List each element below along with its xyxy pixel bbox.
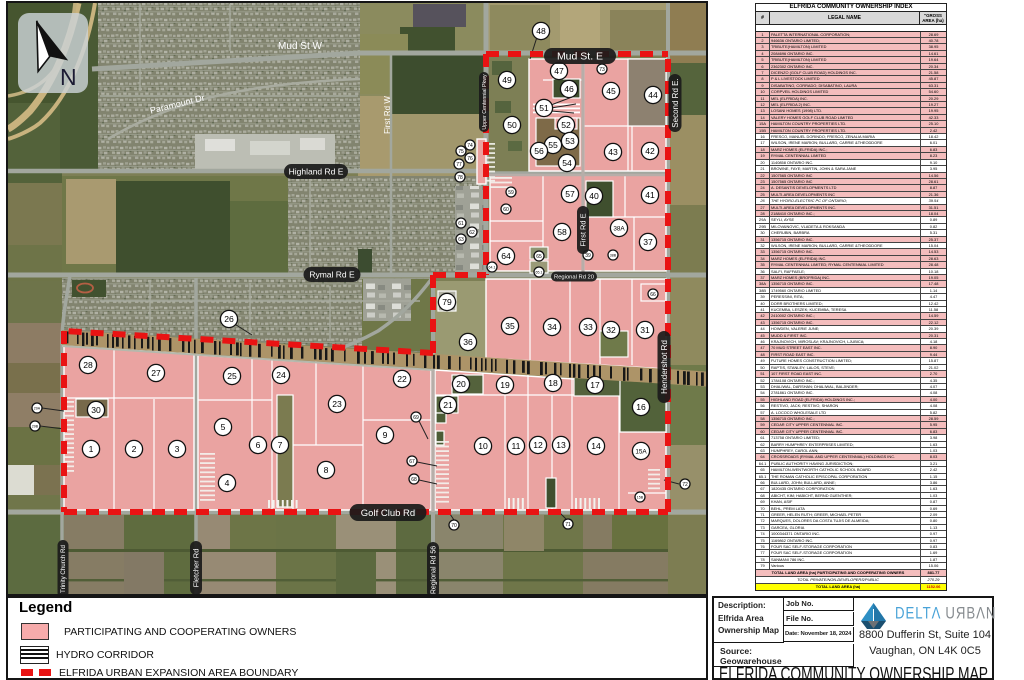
svg-text:52: 52 (561, 120, 571, 130)
svg-text:16: 16 (636, 402, 646, 412)
svg-text:N: N (60, 64, 77, 90)
svg-text:65.1: 65.1 (536, 270, 543, 274)
svg-text:20: 20 (456, 379, 466, 389)
svg-text:Regional Rd 20: Regional Rd 20 (554, 275, 594, 281)
svg-text:26: 26 (224, 314, 234, 324)
svg-text:77: 77 (456, 162, 462, 168)
svg-text:32: 32 (606, 325, 616, 335)
svg-text:First Rd W: First Rd W (383, 96, 392, 134)
svg-text:Rymal Rd E: Rymal Rd E (309, 270, 355, 280)
svg-text:4: 4 (225, 478, 230, 488)
svg-text:72: 72 (682, 482, 688, 488)
svg-text:78: 78 (457, 175, 463, 181)
svg-text:51: 51 (539, 103, 549, 113)
svg-text:53: 53 (565, 136, 575, 146)
svg-text:DELTΛ: DELTΛ (895, 604, 941, 623)
svg-text:62: 62 (469, 230, 475, 236)
svg-text:45: 45 (606, 86, 616, 96)
svg-text:31: 31 (640, 325, 650, 335)
svg-text:Highland Rd E: Highland Rd E (289, 167, 344, 177)
svg-text:5: 5 (221, 422, 226, 432)
svg-text:76: 76 (467, 156, 473, 162)
svg-text:9: 9 (383, 430, 388, 440)
svg-text:69: 69 (413, 415, 419, 421)
svg-text:38A: 38A (613, 225, 625, 232)
svg-text:40: 40 (589, 191, 599, 201)
svg-text:66: 66 (650, 292, 656, 298)
svg-text:71: 71 (565, 522, 571, 528)
svg-text:68: 68 (411, 477, 417, 483)
svg-text:18: 18 (548, 378, 558, 388)
svg-text:55: 55 (548, 140, 558, 150)
svg-text:1: 1 (89, 444, 94, 454)
svg-text:64: 64 (501, 251, 511, 261)
svg-text:Hendershot Rd: Hendershot Rd (660, 340, 669, 394)
svg-text:19: 19 (500, 380, 510, 390)
svg-text:58: 58 (557, 227, 567, 237)
svg-text:33: 33 (583, 322, 593, 332)
svg-text:36: 36 (463, 337, 473, 347)
svg-text:63: 63 (458, 237, 464, 243)
svg-text:6: 6 (256, 440, 261, 450)
svg-text:37: 37 (643, 237, 653, 247)
svg-text:47: 47 (554, 66, 564, 76)
svg-text:21: 21 (443, 400, 453, 410)
svg-text:UЯBΛN: UЯBΛN (945, 604, 996, 623)
svg-text:27: 27 (151, 368, 161, 378)
svg-text:79: 79 (442, 297, 452, 307)
svg-text:35: 35 (505, 321, 515, 331)
svg-text:65: 65 (536, 254, 542, 260)
svg-text:44: 44 (648, 90, 658, 100)
svg-text:8: 8 (324, 465, 329, 475)
svg-text:74: 74 (467, 143, 473, 149)
svg-text:57: 57 (565, 189, 575, 199)
svg-text:11: 11 (512, 441, 521, 451)
svg-text:First Rd E: First Rd E (579, 213, 588, 246)
svg-text:Mud St W: Mud St W (278, 41, 322, 52)
svg-text:Mud St. E: Mud St. E (557, 51, 603, 63)
svg-text:Upper Centennial Pkwy: Upper Centennial Pkwy (482, 74, 488, 130)
svg-text:59: 59 (508, 190, 514, 196)
svg-text:17: 17 (590, 380, 600, 390)
svg-text:56: 56 (534, 146, 544, 156)
svg-text:3: 3 (175, 444, 180, 454)
svg-text:46: 46 (564, 84, 574, 94)
svg-text:12: 12 (533, 440, 543, 450)
svg-text:23: 23 (332, 399, 342, 409)
svg-text:Regional Rd 56: Regional Rd 56 (430, 546, 437, 594)
svg-text:42: 42 (645, 146, 655, 156)
svg-text:22: 22 (397, 374, 407, 384)
svg-text:29A: 29A (34, 406, 41, 410)
svg-text:29B: 29B (32, 424, 39, 428)
svg-text:30: 30 (91, 405, 101, 415)
svg-text:25: 25 (227, 371, 237, 381)
svg-text:39: 39 (585, 253, 591, 259)
svg-text:Trinity Church Rd: Trinity Church Rd (60, 544, 67, 592)
svg-text:28: 28 (83, 360, 93, 370)
svg-text:Second Rd E.: Second Rd E. (671, 78, 680, 127)
svg-text:41: 41 (645, 190, 655, 200)
svg-text:50: 50 (507, 120, 517, 130)
svg-text:7: 7 (278, 440, 283, 450)
svg-text:15B: 15B (637, 495, 644, 499)
svg-text:48: 48 (536, 26, 546, 36)
svg-text:2: 2 (132, 444, 137, 454)
svg-text:38B: 38B (610, 253, 617, 257)
svg-text:24: 24 (276, 370, 286, 380)
svg-text:Fletcher Rd: Fletcher Rd (192, 549, 201, 588)
svg-text:15A: 15A (635, 448, 647, 455)
svg-text:61: 61 (458, 221, 464, 227)
svg-text:60: 60 (503, 207, 509, 213)
svg-text:Golf Club Rd: Golf Club Rd (361, 508, 415, 519)
svg-text:34: 34 (547, 322, 557, 332)
svg-text:43: 43 (608, 147, 618, 157)
svg-text:14: 14 (591, 441, 601, 451)
svg-text:10: 10 (478, 441, 488, 451)
svg-text:64.1: 64.1 (489, 265, 496, 269)
svg-text:13: 13 (556, 440, 566, 450)
svg-text:54: 54 (562, 158, 572, 168)
svg-text:49: 49 (502, 75, 512, 85)
svg-text:75: 75 (458, 149, 464, 155)
svg-text:67: 67 (409, 459, 415, 465)
svg-text:73: 73 (599, 67, 605, 73)
svg-text:70: 70 (451, 523, 457, 529)
